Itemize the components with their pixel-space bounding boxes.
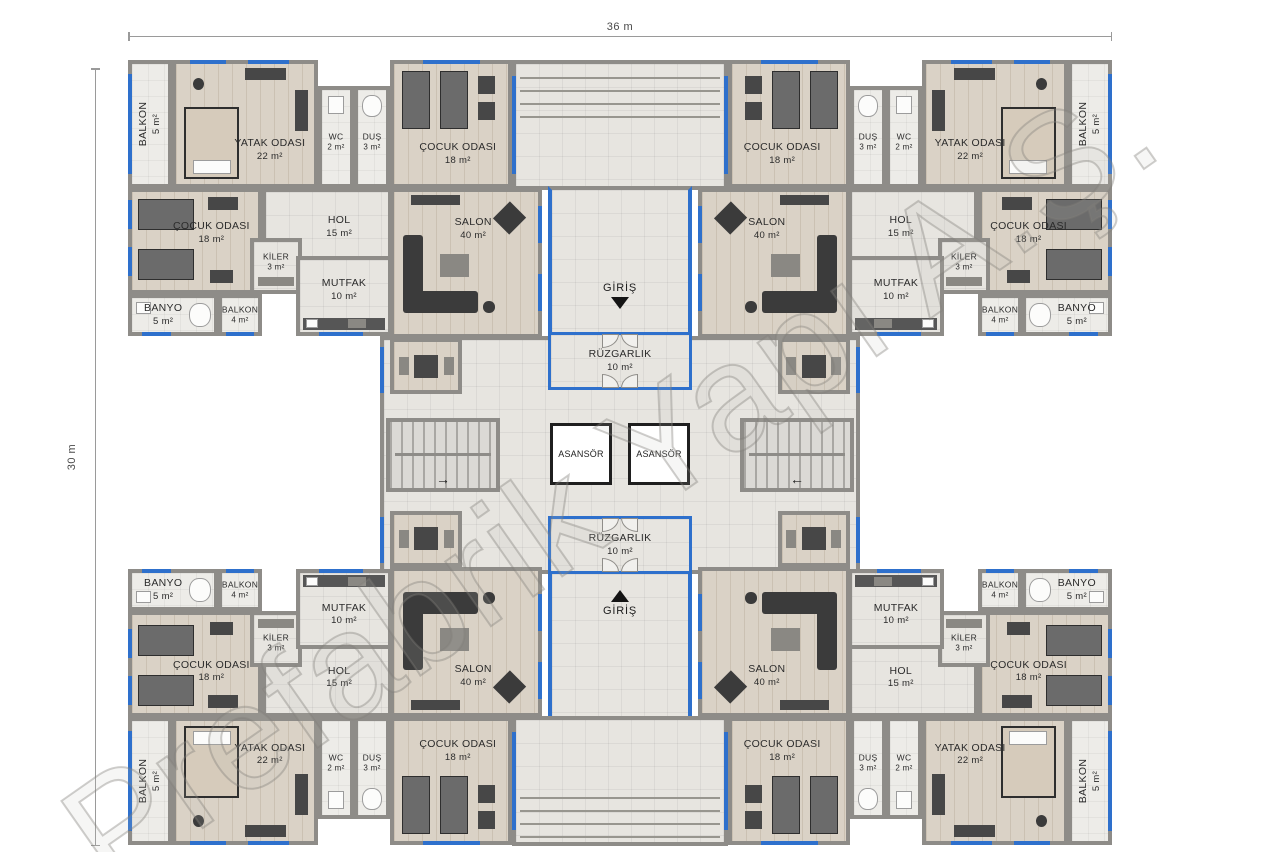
room-br-balkon-4: BALKON4 m² [978, 569, 1022, 611]
furniture-white [193, 731, 232, 745]
room-label: RÜZGARLIK10 m² [589, 532, 652, 558]
furniture-dark [478, 785, 495, 803]
double-door-icon [602, 334, 638, 348]
room-label: YATAK ODASI22 m² [935, 742, 1006, 768]
room-name: ÇOCUK ODASI [990, 659, 1067, 671]
furniture-diamond [493, 670, 526, 703]
room-label: ÇOCUK ODASI18 m² [173, 659, 250, 685]
room-label: HOL15 m² [888, 665, 914, 691]
window [248, 841, 289, 845]
room-br-dus: DUŞ3 m² [850, 717, 886, 819]
furniture-sofa [403, 608, 423, 670]
room-label: BALKON5 m² [1077, 102, 1103, 146]
room-label: MUTFAK10 m² [322, 602, 366, 628]
furniture-white [922, 319, 934, 328]
furniture-dark [802, 527, 825, 549]
window [724, 732, 728, 830]
furniture-dark [932, 774, 946, 815]
double-door-icon [602, 518, 638, 532]
entrance-steps [520, 786, 720, 840]
furniture-bedd [440, 776, 469, 834]
furniture-bedd [810, 71, 839, 129]
furniture-dark [1002, 695, 1032, 708]
furniture-dark [954, 68, 995, 80]
window [142, 332, 171, 336]
room-name: YATAK ODASI [234, 742, 305, 754]
room-area: 3 m² [263, 262, 289, 272]
window [1108, 629, 1112, 658]
furniture-mid [348, 319, 366, 328]
furniture-mid [440, 628, 469, 651]
room-tl-dining-nook [390, 338, 462, 394]
room-name: YATAK ODASI [935, 137, 1006, 149]
room-name: BALKON [137, 759, 149, 803]
room-name: BALKON [137, 102, 149, 146]
room-br-mutfak: MUTFAK10 m² [848, 569, 944, 649]
room-name: BALKON [222, 304, 258, 314]
room-label: RÜZGARLIK10 m² [589, 348, 652, 374]
room-area: 40 m² [748, 677, 785, 689]
furniture-sofa [403, 235, 423, 297]
room-bl-balkon-5: BALKON5 m² [128, 717, 172, 845]
room-label: BANYO5 m² [144, 302, 182, 328]
furniture-diamond [493, 202, 526, 235]
furniture-mid [786, 357, 796, 374]
room-area: 18 m² [744, 752, 821, 764]
window [226, 569, 253, 573]
furniture-bedd [138, 625, 193, 656]
room-label: DUŞ3 m² [859, 131, 878, 152]
room-name: WC [897, 131, 912, 141]
room-area: 2 m² [895, 142, 912, 152]
room-area: 15 m² [888, 228, 914, 240]
room-area: 5 m² [151, 759, 163, 803]
furniture-white [1009, 731, 1048, 745]
room-label: KİLER3 m² [263, 251, 289, 272]
furniture-white [922, 577, 934, 586]
window [226, 332, 253, 336]
room-name: ÇOCUK ODASI [173, 659, 250, 671]
room-label: BALKON5 m² [137, 759, 163, 803]
window [1108, 74, 1112, 175]
room-area: 18 m² [173, 672, 250, 684]
room-area: 18 m² [173, 234, 250, 246]
window [248, 60, 289, 64]
furniture-dark [411, 195, 460, 205]
room-label: BALKON4 m² [982, 579, 1018, 600]
furniture-dark [802, 355, 825, 377]
room-tr-banyo: BANYO5 m² [1022, 294, 1112, 336]
vestibule-bottom: RÜZGARLIK10 m² [548, 516, 692, 574]
furniture-dark [245, 68, 286, 80]
room-br-balkon-5: BALKON5 m² [1068, 717, 1112, 845]
window [128, 74, 132, 175]
furniture-sofa [762, 291, 837, 312]
room-bl-cocuk-odasi-side: ÇOCUK ODASI18 m² [128, 611, 262, 717]
furniture-bedd [772, 71, 801, 129]
room-area: 4 m² [222, 590, 258, 600]
furniture-whiteround [362, 788, 382, 811]
window [190, 841, 226, 845]
furniture-dot [483, 592, 495, 603]
room-area: 5 m² [1058, 316, 1096, 328]
room-label: WC2 m² [327, 131, 344, 152]
room-tr-kiler: KİLER3 m² [938, 238, 990, 294]
furniture-mid [444, 530, 454, 547]
room-area: 3 m² [363, 764, 382, 774]
room-label: SALON40 m² [455, 216, 492, 242]
furniture-dark [1007, 622, 1030, 635]
window [380, 347, 384, 393]
window [128, 676, 132, 705]
room-area: 3 m² [859, 142, 878, 152]
room-label: MUTFAK10 m² [874, 602, 918, 628]
room-area: 3 m² [951, 262, 977, 272]
furniture-dark [932, 90, 946, 131]
room-label: YATAK ODASI22 m² [234, 137, 305, 163]
room-tr-cocuk-odasi-side: ÇOCUK ODASI18 m² [978, 188, 1112, 294]
window [761, 841, 818, 845]
room-area: 5 m² [1091, 102, 1103, 146]
vestibule-top: RÜZGARLIK10 m² [548, 332, 692, 390]
room-area: 2 m² [895, 764, 912, 774]
room-label: YATAK ODASI22 m² [935, 137, 1006, 163]
room-label: BANYO5 m² [1058, 302, 1096, 328]
room-label: WC2 m² [895, 131, 912, 152]
window [128, 731, 132, 832]
room-label: DUŞ3 m² [859, 753, 878, 774]
room-tr-wc: WC2 m² [886, 86, 922, 188]
room-label: ÇOCUK ODASI18 m² [990, 220, 1067, 246]
room-br-cocuk-odasi-side: ÇOCUK ODASI18 m² [978, 611, 1112, 717]
window [856, 347, 860, 393]
furniture-mid [771, 254, 800, 277]
room-area: 18 m² [419, 752, 496, 764]
furniture-dot [1036, 815, 1047, 827]
furniture-bedd [440, 71, 469, 129]
window [951, 841, 992, 845]
staircase-right: ← [740, 418, 854, 492]
room-bl-mutfak: MUTFAK10 m² [296, 569, 392, 649]
room-tr-dus: DUŞ3 m² [850, 86, 886, 188]
room-name: MUTFAK [322, 277, 366, 289]
window [512, 732, 516, 830]
room-area: 18 m² [990, 234, 1067, 246]
room-label: BALKON4 m² [222, 304, 258, 325]
window [190, 60, 226, 64]
room-label: KİLER3 m² [951, 251, 977, 272]
furniture-mid [946, 277, 981, 287]
furniture-dark [245, 825, 286, 837]
room-area: 5 m² [144, 591, 182, 603]
furniture-whiteround [1029, 578, 1050, 602]
furniture-mid [444, 357, 454, 374]
furniture-white [306, 319, 318, 328]
room-label: ÇOCUK ODASI18 m² [173, 220, 250, 246]
room-bl-dining-nook [390, 511, 462, 567]
entrance-corridor-top [512, 60, 728, 190]
room-name: BALKON [1077, 102, 1089, 146]
room-label: SALON40 m² [748, 663, 785, 689]
room-name: WC [897, 753, 912, 763]
room-name: ÇOCUK ODASI [744, 738, 821, 750]
room-name: HOL [890, 214, 913, 226]
furniture-dark [1007, 270, 1030, 283]
furniture-dark [208, 197, 238, 210]
dimension-tick [1111, 32, 1113, 41]
furniture-dark [210, 622, 233, 635]
room-name: ÇOCUK ODASI [173, 220, 250, 232]
window [128, 247, 132, 276]
room-area: 3 m² [363, 142, 382, 152]
room-name: BANYO [144, 302, 182, 314]
furniture-bedd [810, 776, 839, 834]
room-br-dining-nook [778, 511, 850, 567]
room-label: SALON40 m² [455, 663, 492, 689]
room-area: 4 m² [982, 590, 1018, 600]
room-area: 22 m² [935, 151, 1006, 163]
room-name: HOL [328, 665, 351, 677]
furniture-sofa [762, 592, 837, 613]
room-area: 3 m² [859, 764, 878, 774]
room-area: 5 m² [151, 102, 163, 146]
window [1108, 247, 1112, 276]
room-area: 15 m² [326, 228, 352, 240]
room-name: BANYO [1058, 577, 1096, 589]
dimension-line-horizontal: 36 m [128, 36, 1112, 37]
room-label: YATAK ODASI22 m² [234, 742, 305, 768]
room-name: MUTFAK [874, 277, 918, 289]
stair-landing-rail [395, 453, 490, 456]
furniture-mid [831, 357, 841, 374]
room-area: 18 m² [990, 672, 1067, 684]
room-tl-balkon-5: BALKON5 m² [128, 60, 172, 188]
furniture-bedd [402, 71, 431, 129]
furniture-sofa [403, 592, 478, 613]
window [761, 60, 818, 64]
room-label: DUŞ3 m² [363, 131, 382, 152]
window [856, 517, 860, 563]
room-name: YATAK ODASI [935, 742, 1006, 754]
elevator-right: ASANSÖR [628, 423, 690, 485]
room-area: 10 m² [322, 615, 366, 627]
dimension-label-horizontal: 36 m [607, 21, 633, 33]
furniture-sofa [403, 291, 478, 312]
window [319, 332, 363, 336]
room-area: 3 m² [951, 643, 977, 653]
window [698, 206, 702, 243]
furniture-mid [771, 628, 800, 651]
room-name: MUTFAK [322, 602, 366, 614]
entrance-bottom: GİRİŞ [566, 590, 674, 636]
furniture-bedd [138, 249, 193, 280]
room-name: BALKON [982, 579, 1018, 589]
room-tr-salon: SALON40 m² [698, 188, 850, 338]
window [512, 76, 516, 174]
window [1069, 569, 1098, 573]
dimension-tick [128, 32, 130, 41]
room-tl-yatak-odasi: YATAK ODASI22 m² [172, 60, 318, 188]
room-area: 22 m² [234, 755, 305, 767]
elevator-label: ASANSÖR [558, 449, 603, 459]
furniture-dark [411, 700, 460, 710]
furniture-dark [478, 76, 495, 94]
room-tl-dus: DUŞ3 m² [354, 86, 390, 188]
furniture-mid [399, 530, 409, 547]
room-area: 18 m² [744, 155, 821, 167]
room-name: DUŞ [859, 753, 878, 763]
room-tr-balkon-4: BALKON4 m² [978, 294, 1022, 336]
room-tl-wc: WC2 m² [318, 86, 354, 188]
room-name: DUŞ [363, 753, 382, 763]
furniture-sofa [817, 235, 837, 297]
room-name: WC [329, 753, 344, 763]
room-bl-banyo: BANYO5 m² [128, 569, 218, 611]
window [698, 274, 702, 311]
room-name: YATAK ODASI [234, 137, 305, 149]
room-tl-balkon-4: BALKON4 m² [218, 294, 262, 336]
room-name: KİLER [951, 251, 977, 261]
room-name: MUTFAK [874, 602, 918, 614]
double-door-icon [602, 558, 638, 572]
furniture-mid [399, 357, 409, 374]
furniture-dot [745, 592, 757, 603]
room-label: BANYO5 m² [144, 577, 182, 603]
furniture-bedd [772, 776, 801, 834]
room-tl-kiler: KİLER3 m² [250, 238, 302, 294]
furniture-diamond [714, 202, 747, 235]
dimension-label-vertical: 30 m [66, 444, 78, 470]
room-tr-balkon-5: BALKON5 m² [1068, 60, 1112, 188]
room-br-salon: SALON40 m² [698, 567, 850, 717]
room-area: 22 m² [935, 755, 1006, 767]
window [1108, 676, 1112, 705]
furniture-dark [780, 700, 829, 710]
room-label: HOL15 m² [888, 214, 914, 240]
floor-plan: 36 m 30 m Prefabrik Yapı A.Ş. →←BALKON5 … [0, 0, 1280, 852]
room-label: HOL15 m² [326, 665, 352, 691]
window [698, 662, 702, 699]
room-br-kiler: KİLER3 m² [938, 611, 990, 667]
furniture-white [306, 577, 318, 586]
room-area: 5 m² [144, 316, 182, 328]
room-name: SALON [748, 216, 785, 228]
room-name: DUŞ [859, 131, 878, 141]
room-area: 22 m² [234, 151, 305, 163]
room-name: HOL [328, 214, 351, 226]
window [128, 629, 132, 658]
furniture-dark [210, 270, 233, 283]
elevator-label: ASANSÖR [636, 449, 681, 459]
dimension-tick [91, 845, 100, 847]
furniture-bedd [402, 776, 431, 834]
furniture-dark [208, 695, 238, 708]
furniture-mid [874, 319, 892, 328]
room-name: ÇOCUK ODASI [990, 220, 1067, 232]
furniture-dark [414, 527, 437, 549]
room-area: 5 m² [1091, 759, 1103, 803]
room-tr-cocuk-odasi-top: ÇOCUK ODASI18 m² [728, 60, 850, 188]
room-area: 40 m² [455, 230, 492, 242]
furniture-dark [414, 355, 437, 377]
dimension-tick [91, 68, 100, 70]
furniture-mid [874, 577, 892, 586]
furniture-bedd [1046, 625, 1101, 656]
furniture-dot [483, 301, 495, 312]
entrance-label: GİRİŞ [603, 282, 637, 294]
furniture-whiteround [189, 578, 210, 602]
room-area: 15 m² [326, 678, 352, 690]
room-br-yatak-odasi: YATAK ODASI22 m² [922, 717, 1068, 845]
furniture-sofa [817, 608, 837, 670]
elevator-left: ASANSÖR [550, 423, 612, 485]
window [423, 841, 480, 845]
room-area: 3 m² [263, 643, 289, 653]
room-area: 40 m² [455, 677, 492, 689]
window [538, 274, 542, 311]
room-label: ÇOCUK ODASI18 m² [419, 141, 496, 167]
furniture-white [328, 791, 344, 810]
furniture-dot [1036, 78, 1047, 90]
furniture-white [1009, 160, 1048, 174]
window [380, 517, 384, 563]
room-label: WC2 m² [895, 753, 912, 774]
room-area: 2 m² [327, 764, 344, 774]
furniture-mid [258, 619, 293, 629]
furniture-white [193, 160, 232, 174]
stair-landing-rail [749, 453, 844, 456]
window [724, 76, 728, 174]
room-bl-balkon-4: BALKON4 m² [218, 569, 262, 611]
room-label: ÇOCUK ODASI18 m² [744, 141, 821, 167]
room-area: 10 m² [589, 546, 652, 558]
staircase-left: → [386, 418, 500, 492]
window [1108, 200, 1112, 229]
room-name: BANYO [144, 577, 182, 589]
room-area: 4 m² [222, 315, 258, 325]
room-name: BALKON [1077, 759, 1089, 803]
room-bl-yatak-odasi: YATAK ODASI22 m² [172, 717, 318, 845]
window [1069, 332, 1098, 336]
room-name: BANYO [1058, 302, 1096, 314]
furniture-whiteround [1029, 303, 1050, 327]
furniture-mid [440, 254, 469, 277]
room-label: BALKON4 m² [222, 579, 258, 600]
window [423, 60, 480, 64]
furniture-mid [786, 530, 796, 547]
window [128, 200, 132, 229]
window [877, 332, 921, 336]
window [1108, 731, 1112, 832]
room-tl-salon: SALON40 m² [390, 188, 542, 338]
room-label: DUŞ3 m² [363, 753, 382, 774]
room-label: BANYO5 m² [1058, 577, 1096, 603]
stair-direction-arrow: ← [744, 471, 850, 487]
room-area: 18 m² [419, 155, 496, 167]
room-name: ÇOCUK ODASI [419, 738, 496, 750]
furniture-dark [745, 811, 762, 829]
room-label: BALKON4 m² [982, 304, 1018, 325]
room-area: 10 m² [322, 291, 366, 303]
furniture-whiteround [858, 95, 878, 118]
window [538, 594, 542, 631]
room-area: 40 m² [748, 230, 785, 242]
furniture-whiteround [189, 303, 210, 327]
furniture-dot [193, 78, 204, 90]
furniture-mid [831, 530, 841, 547]
room-tl-banyo: BANYO5 m² [128, 294, 218, 336]
room-name: BALKON [222, 579, 258, 589]
